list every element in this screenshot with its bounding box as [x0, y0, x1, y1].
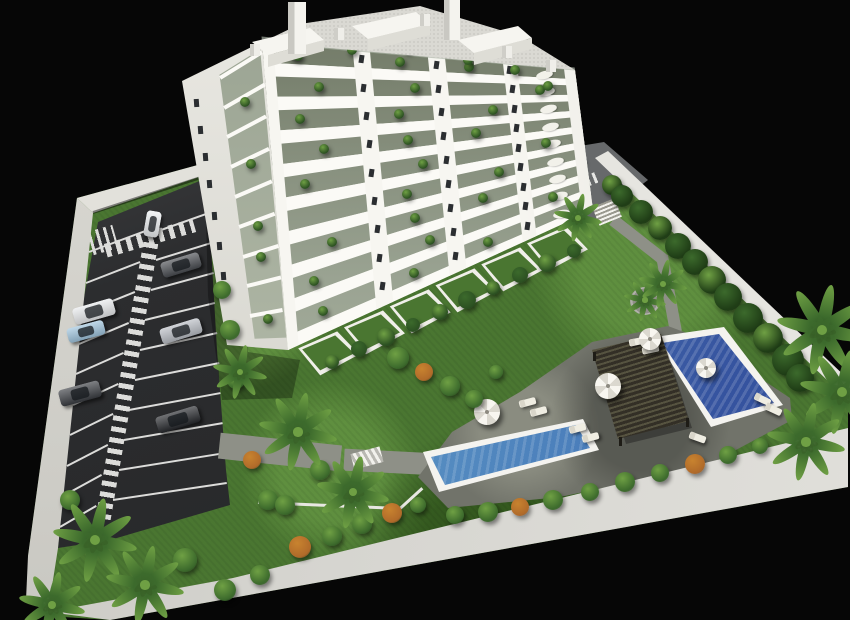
shrub [243, 451, 261, 469]
shrub [289, 536, 311, 558]
wall-hedge-tree [611, 185, 633, 207]
palm-crown [140, 580, 149, 589]
palm-crown [660, 281, 666, 287]
palm-crown [642, 297, 647, 302]
balcony-plant [314, 82, 324, 92]
shrub [465, 390, 483, 408]
sun-lounger-back [530, 408, 537, 416]
sun-lounger-back [569, 425, 576, 433]
balcony-plant [418, 159, 428, 169]
roof-chimney [546, 60, 556, 72]
palm-crown [293, 427, 302, 436]
balcony-plant [471, 128, 481, 138]
shrub [220, 320, 240, 340]
shrub [173, 548, 197, 572]
balcony-plant [488, 105, 498, 115]
pergola-post [593, 352, 596, 361]
base-hedge [432, 304, 448, 320]
sun-lounger-back [582, 434, 589, 442]
shrub [440, 376, 460, 396]
car-cabin [171, 323, 192, 338]
car-cabin [167, 411, 189, 427]
side-window [221, 271, 227, 279]
side-window [194, 99, 200, 107]
balcony-plant [425, 235, 435, 245]
roof-terrace-plant [543, 81, 553, 91]
car-cabin [171, 258, 191, 273]
parasol [696, 358, 716, 378]
car-cabin [70, 385, 91, 400]
shrub [651, 464, 669, 482]
balcony-plant [309, 276, 319, 286]
palm-crown [48, 601, 56, 609]
palm-crown [90, 535, 100, 545]
shrub [410, 497, 426, 513]
side-window [216, 242, 222, 250]
roof-chimney [334, 28, 344, 40]
pergola-post [619, 437, 622, 446]
side-window [202, 153, 208, 161]
balcony-plant [240, 97, 250, 107]
car-cabin [77, 324, 96, 338]
shrub [685, 454, 705, 474]
shrub [382, 503, 402, 523]
shrub [213, 281, 231, 299]
balcony-plant [253, 221, 263, 231]
roof-chimney [420, 14, 430, 26]
side-window [207, 180, 213, 188]
facade-window [443, 156, 449, 165]
shrub [752, 438, 768, 454]
car-cabin [84, 303, 105, 319]
shrub [478, 502, 498, 522]
palm-crown [801, 437, 810, 446]
base-hedge [406, 318, 420, 332]
shrub [415, 363, 433, 381]
roof-tower [444, 0, 460, 40]
facade-window [379, 282, 385, 291]
shrub [250, 565, 270, 585]
shrub [489, 365, 503, 379]
roof-tower [288, 2, 306, 54]
shrub [387, 347, 409, 369]
shrub [214, 579, 236, 601]
balcony-plant [318, 306, 328, 316]
shrub [446, 506, 464, 524]
parasol-tip [704, 366, 708, 370]
facade-window [374, 225, 380, 234]
side-window [212, 212, 218, 220]
roof-terrace-plant [510, 65, 520, 75]
facade-window [433, 60, 439, 69]
facade-window [520, 183, 526, 192]
roof-chimney [502, 46, 512, 58]
sun-lounger-back [519, 399, 526, 407]
base-hedge [567, 244, 581, 258]
shrub [543, 490, 563, 510]
palm-crown [575, 215, 581, 221]
shrub [322, 526, 342, 546]
balcony-plant [295, 114, 305, 124]
facade-window [522, 202, 528, 211]
car-cabin [147, 215, 156, 233]
base-hedge [325, 355, 339, 369]
facade-window [438, 108, 444, 117]
balcony-plant [548, 192, 558, 202]
base-hedge [377, 328, 395, 346]
architectural-render-canvas [0, 0, 850, 620]
sun-lounger-back [629, 338, 635, 346]
facade-window [450, 227, 456, 236]
base-hedge [486, 281, 500, 295]
facade-window [371, 197, 377, 206]
shrub [275, 495, 295, 515]
facade-window [445, 180, 451, 189]
palm-crown [837, 387, 847, 397]
parasol-tip [606, 384, 610, 388]
shrub [581, 483, 599, 501]
side-window [198, 126, 204, 134]
parasol [595, 373, 621, 399]
facade-window [509, 85, 515, 94]
balcony-plant [483, 237, 493, 247]
facade-window [366, 140, 372, 149]
facade-window [511, 105, 517, 114]
facade-window [358, 55, 364, 64]
roof-chimney [250, 44, 260, 56]
balcony-plant [402, 189, 412, 199]
parasol-tip [485, 410, 489, 414]
shrub [615, 472, 635, 492]
shrub [719, 446, 737, 464]
facade-window [524, 221, 530, 230]
base-hedge [458, 291, 476, 309]
base-hedge [538, 254, 556, 272]
pergola-post [686, 418, 689, 427]
shrub [511, 498, 529, 516]
parasol [639, 328, 661, 350]
balcony-plant [263, 314, 273, 324]
parasol-tip [648, 337, 652, 341]
